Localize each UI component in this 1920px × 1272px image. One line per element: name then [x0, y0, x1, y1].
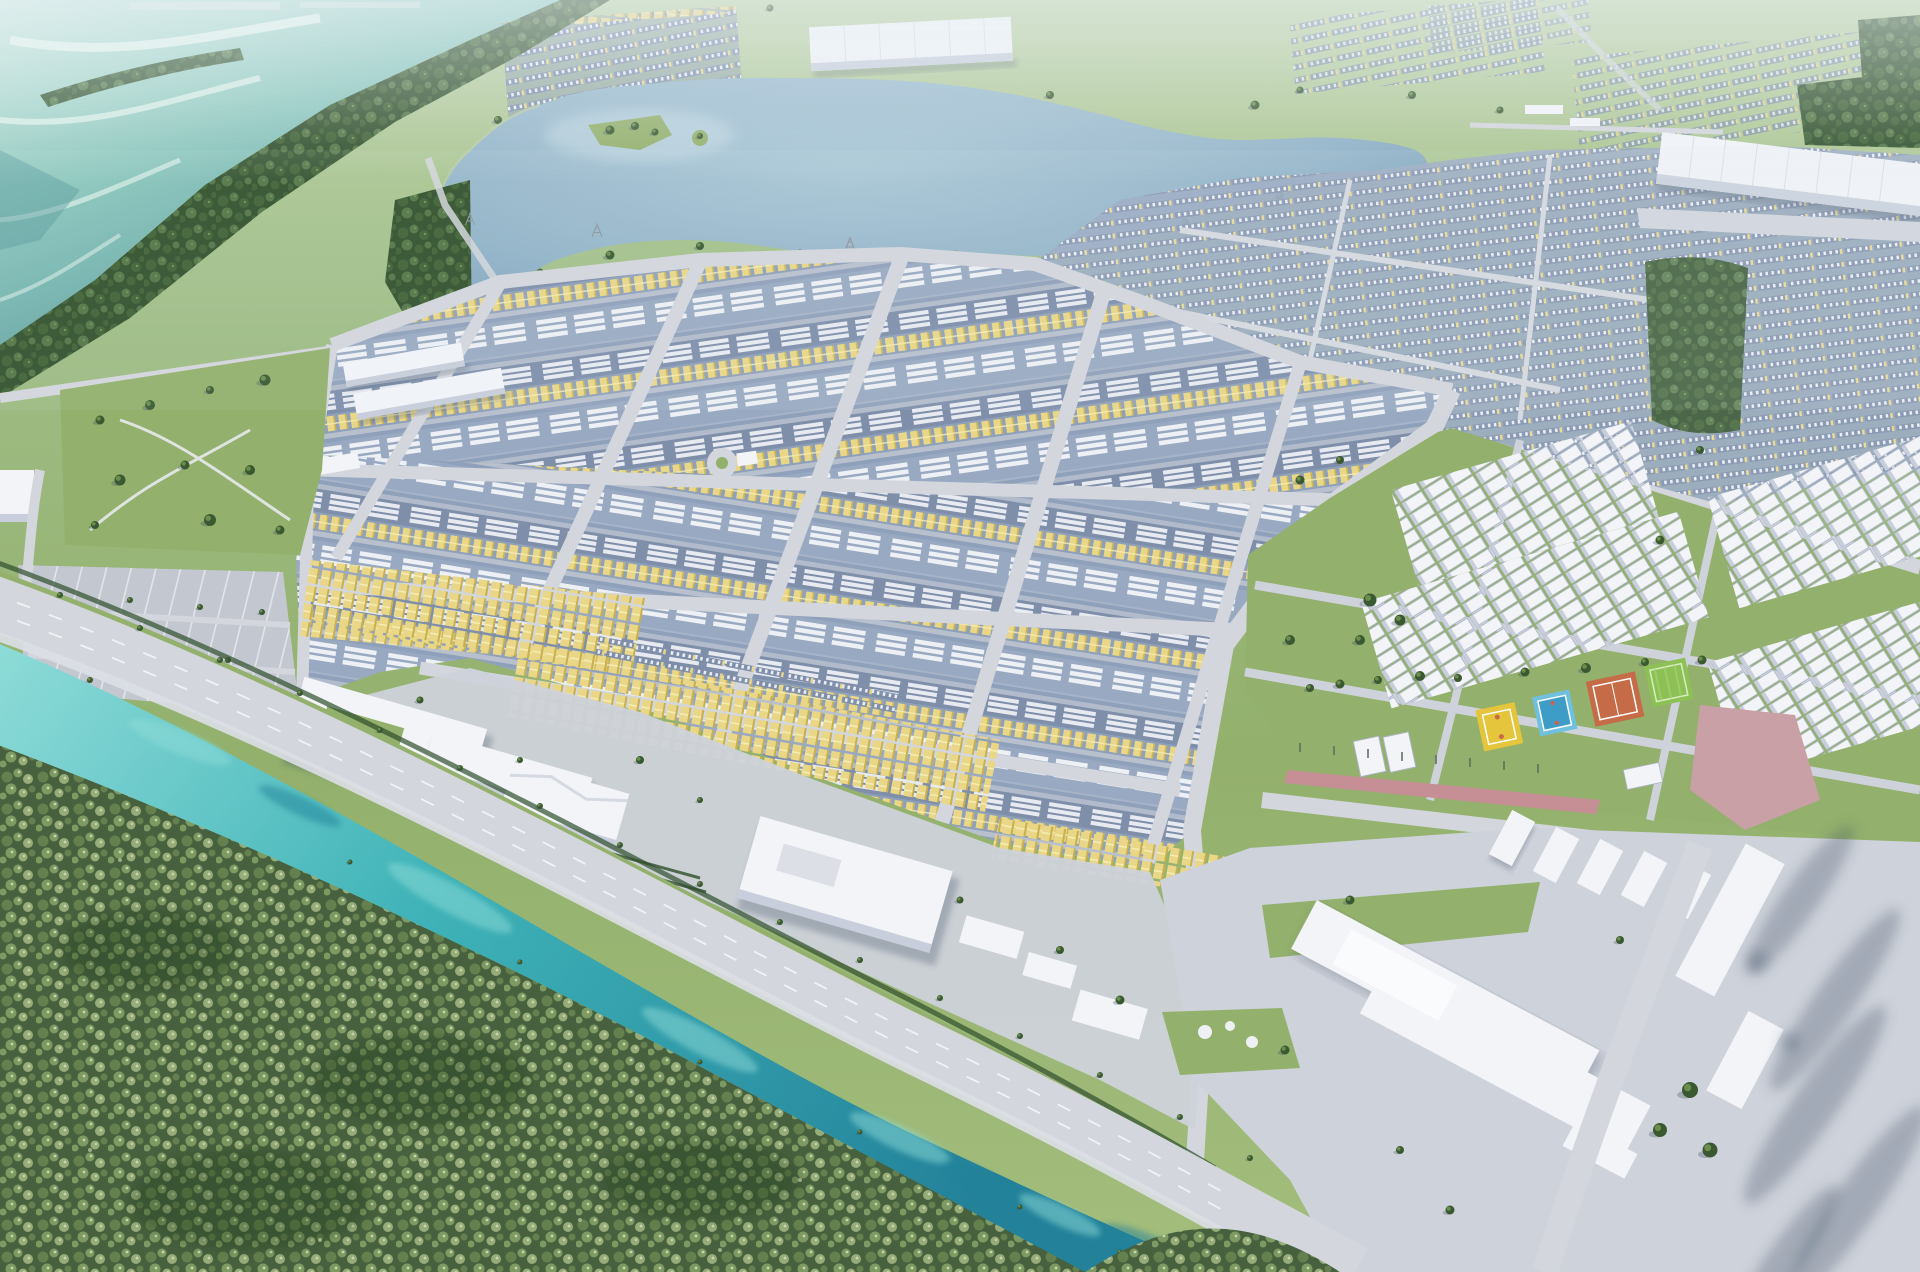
pool-court — [1532, 689, 1577, 736]
mid-haze — [0, 150, 1920, 410]
aerial-render — [0, 0, 1920, 1272]
soccer-field — [1644, 658, 1694, 708]
basketball-court — [1475, 702, 1523, 751]
scene-canvas — [0, 0, 1920, 1272]
